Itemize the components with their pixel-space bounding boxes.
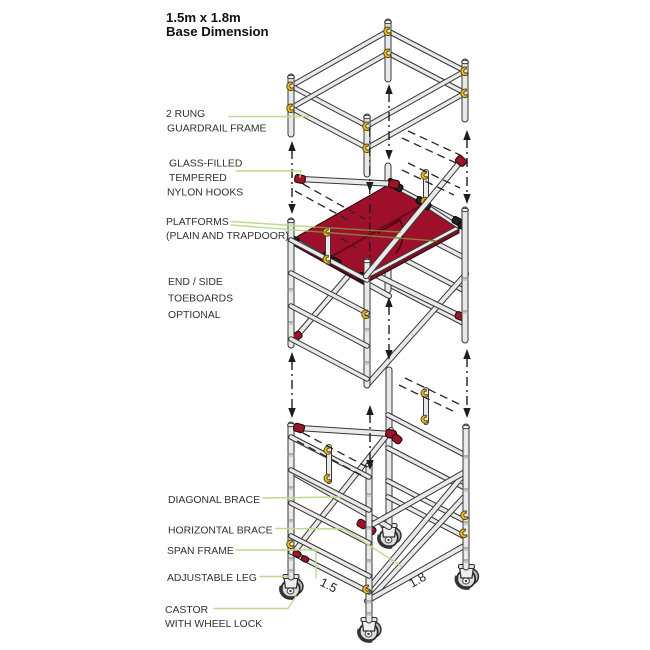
svg-text:(PLAIN AND TRAPDOOR): (PLAIN AND TRAPDOOR) [166, 231, 289, 242]
svg-text:Base Dimension: Base Dimension [166, 24, 269, 39]
svg-text:WITH WHEEL LOCK: WITH WHEEL LOCK [165, 619, 262, 630]
svg-text:HORIZONTAL BRACE: HORIZONTAL BRACE [168, 526, 273, 537]
svg-text:GLASS-FILLED: GLASS-FILLED [169, 159, 242, 170]
svg-text:NYLON HOOKS: NYLON HOOKS [167, 188, 243, 199]
svg-text:TEMPERED: TEMPERED [169, 173, 227, 184]
svg-text:END / SIDE: END / SIDE [168, 277, 223, 288]
svg-text:DIAGONAL BRACE: DIAGONAL BRACE [168, 495, 260, 506]
svg-text:PLATFORMS: PLATFORMS [166, 217, 229, 228]
svg-text:ADJUSTABLE LEG: ADJUSTABLE LEG [167, 573, 257, 584]
svg-text:1.5m x 1.8m: 1.5m x 1.8m [166, 10, 241, 25]
svg-text:TOEBOARDS: TOEBOARDS [168, 294, 233, 305]
svg-text:SPAN FRAME: SPAN FRAME [167, 546, 234, 557]
svg-text:OPTIONAL: OPTIONAL [168, 310, 221, 321]
svg-text:CASTOR: CASTOR [165, 605, 209, 616]
svg-text:2 RUNG: 2 RUNG [166, 109, 205, 120]
svg-text:GUARDRAIL FRAME: GUARDRAIL FRAME [167, 124, 267, 135]
